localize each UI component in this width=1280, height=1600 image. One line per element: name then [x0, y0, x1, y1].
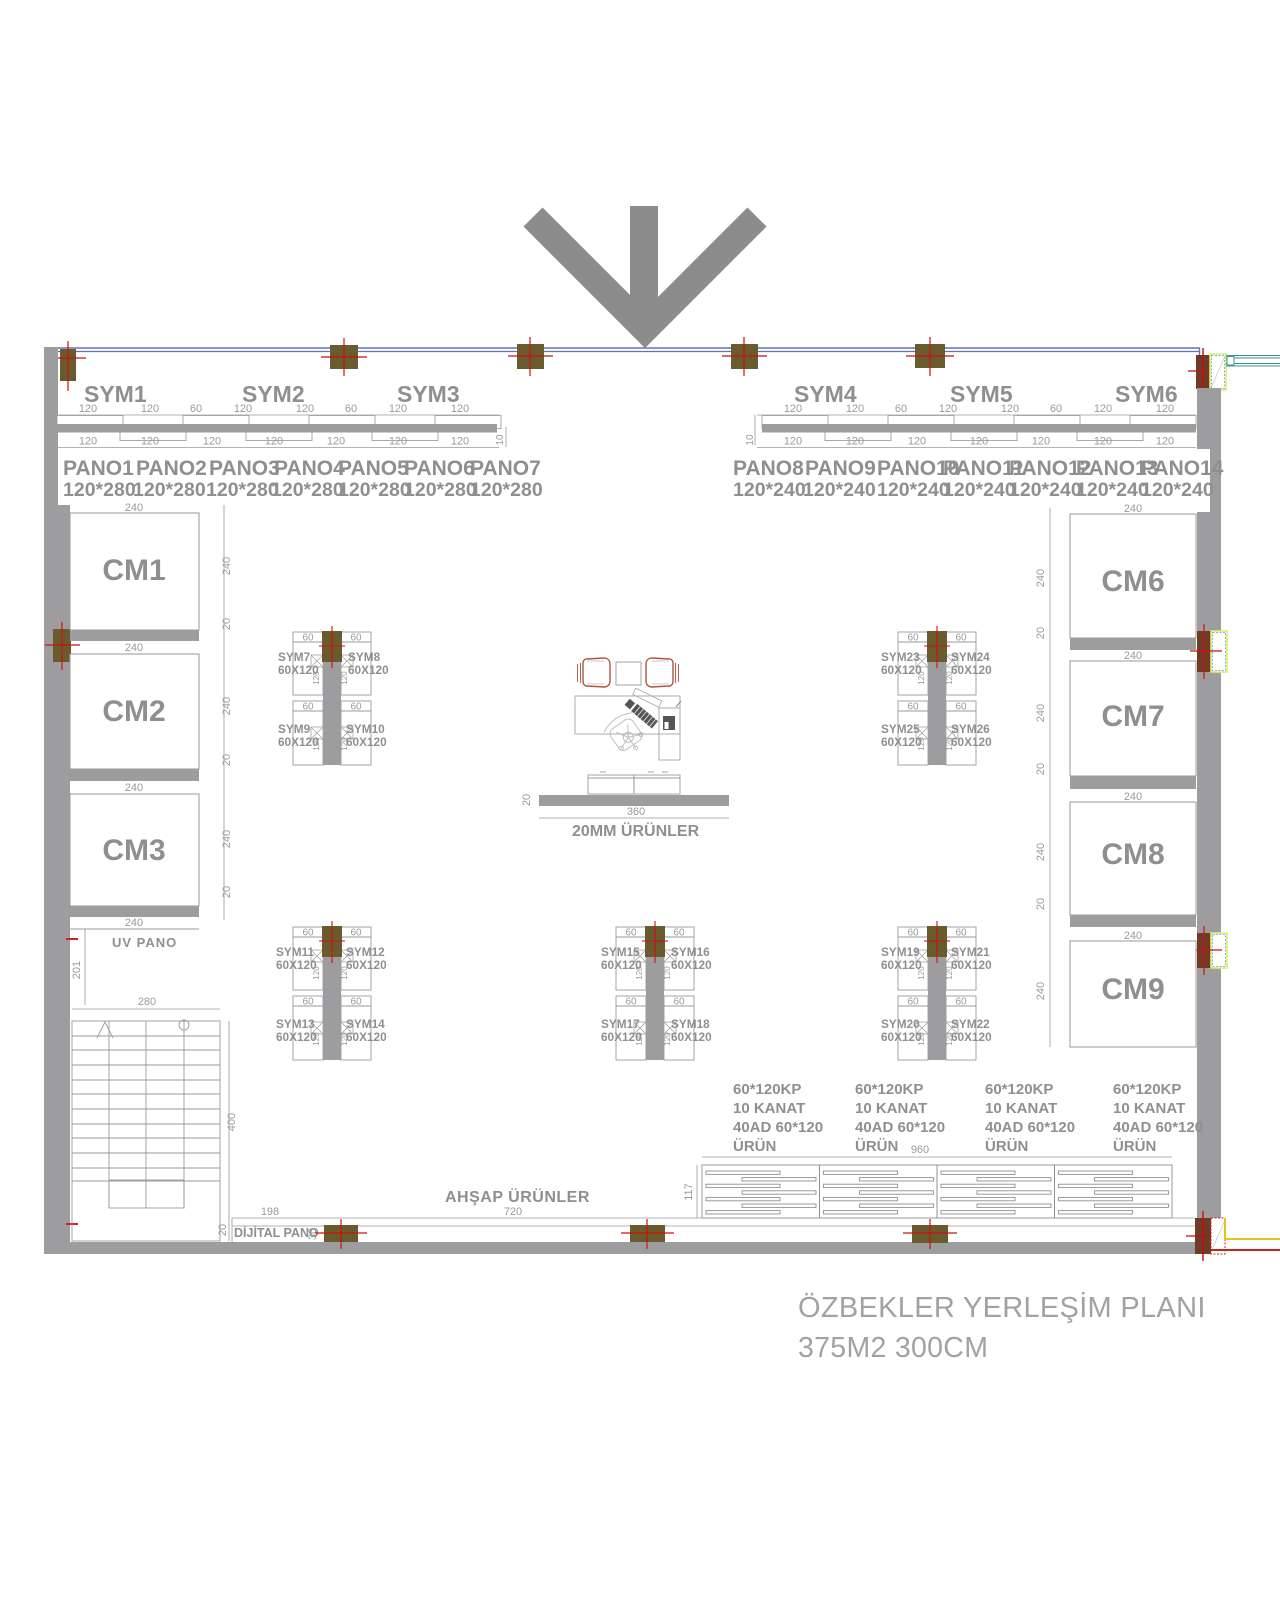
- svg-text:120: 120: [1156, 403, 1174, 415]
- svg-text:60X120: 60X120: [276, 958, 317, 972]
- svg-text:10 KANAT: 10 KANAT: [985, 1100, 1057, 1117]
- svg-text:240: 240: [125, 917, 143, 929]
- svg-text:280: 280: [138, 996, 156, 1008]
- svg-text:120*280: 120*280: [271, 479, 344, 501]
- svg-text:120*240: 120*240: [1009, 479, 1082, 501]
- svg-text:120: 120: [1156, 436, 1174, 448]
- svg-text:120: 120: [141, 403, 159, 415]
- svg-text:120: 120: [451, 403, 469, 415]
- svg-text:120*240: 120*240: [943, 479, 1016, 501]
- svg-text:20MM ÜRÜNLER: 20MM ÜRÜNLER: [572, 821, 700, 840]
- svg-text:CM9: CM9: [1101, 973, 1164, 1006]
- svg-text:240: 240: [1035, 569, 1047, 587]
- svg-text:SYM15: SYM15: [601, 945, 640, 959]
- svg-text:CM8: CM8: [1101, 838, 1164, 871]
- svg-text:ÜRÜN: ÜRÜN: [855, 1138, 898, 1155]
- svg-text:240: 240: [125, 642, 143, 654]
- svg-text:60*120KP: 60*120KP: [855, 1081, 923, 1098]
- svg-text:40AD 60*120: 40AD 60*120: [985, 1119, 1075, 1136]
- svg-text:240: 240: [1124, 930, 1142, 942]
- svg-text:120: 120: [451, 436, 469, 448]
- svg-text:120*240: 120*240: [1141, 479, 1214, 501]
- svg-text:PANO4: PANO4: [274, 457, 345, 480]
- svg-text:40AD 60*120: 40AD 60*120: [733, 1119, 823, 1136]
- svg-text:PANO14: PANO14: [1141, 457, 1224, 480]
- svg-text:120: 120: [265, 436, 283, 448]
- svg-text:120: 120: [784, 403, 802, 415]
- svg-text:120: 120: [1032, 436, 1050, 448]
- svg-text:120*280: 120*280: [338, 479, 411, 501]
- svg-text:120: 120: [203, 436, 221, 448]
- svg-text:120: 120: [939, 403, 957, 415]
- svg-text:120: 120: [846, 436, 864, 448]
- svg-text:ÜRÜN: ÜRÜN: [733, 1138, 776, 1155]
- svg-text:CM3: CM3: [102, 834, 165, 867]
- svg-text:120*280: 120*280: [404, 479, 477, 501]
- svg-text:PANO9: PANO9: [805, 457, 876, 480]
- svg-text:20: 20: [1035, 627, 1047, 639]
- svg-text:60X120: 60X120: [951, 663, 992, 677]
- svg-text:120: 120: [784, 436, 802, 448]
- svg-text:60X120: 60X120: [601, 1030, 642, 1044]
- svg-text:240: 240: [1124, 650, 1142, 662]
- svg-text:60: 60: [895, 403, 907, 415]
- svg-text:240: 240: [1035, 982, 1047, 1000]
- svg-text:60: 60: [1050, 403, 1062, 415]
- svg-text:60X120: 60X120: [671, 1030, 712, 1044]
- svg-text:SYM20: SYM20: [881, 1017, 920, 1031]
- svg-text:PANO5: PANO5: [338, 457, 409, 480]
- svg-text:40AD 60*120: 40AD 60*120: [1113, 1119, 1203, 1136]
- svg-text:375M2 300CM: 375M2 300CM: [798, 1332, 988, 1364]
- svg-text:10 KANAT: 10 KANAT: [1113, 1100, 1185, 1117]
- svg-text:10 KANAT: 10 KANAT: [733, 1100, 805, 1117]
- svg-text:SYM14: SYM14: [346, 1017, 385, 1031]
- svg-text:60X120: 60X120: [346, 1030, 387, 1044]
- svg-text:PANO7: PANO7: [470, 457, 541, 480]
- svg-text:SYM23: SYM23: [881, 650, 920, 664]
- svg-text:PANO8: PANO8: [733, 457, 804, 480]
- svg-text:120*240: 120*240: [803, 479, 876, 501]
- svg-text:20: 20: [521, 794, 533, 806]
- svg-text:60: 60: [345, 403, 357, 415]
- svg-text:60X120: 60X120: [278, 663, 319, 677]
- svg-text:PANO3: PANO3: [209, 457, 280, 480]
- svg-text:UV PANO: UV PANO: [112, 935, 177, 950]
- svg-text:SYM7: SYM7: [278, 650, 311, 664]
- svg-text:120: 120: [79, 403, 97, 415]
- svg-text:120: 120: [970, 436, 988, 448]
- svg-text:120*240: 120*240: [1076, 479, 1149, 501]
- svg-text:60X120: 60X120: [346, 735, 387, 749]
- svg-text:198: 198: [261, 1206, 279, 1218]
- svg-text:SYM17: SYM17: [601, 1017, 640, 1031]
- svg-text:40AD 60*120: 40AD 60*120: [855, 1119, 945, 1136]
- svg-text:240: 240: [221, 697, 233, 715]
- svg-text:60X120: 60X120: [881, 663, 922, 677]
- svg-text:10: 10: [495, 434, 506, 446]
- svg-text:PANO6: PANO6: [404, 457, 475, 480]
- svg-text:400: 400: [226, 1113, 238, 1131]
- svg-text:60X120: 60X120: [346, 958, 387, 972]
- svg-text:CM1: CM1: [102, 554, 165, 587]
- svg-text:ÖZBEKLER YERLEŞİM PLANI: ÖZBEKLER YERLEŞİM PLANI: [798, 1291, 1206, 1324]
- svg-text:20: 20: [1035, 763, 1047, 775]
- svg-text:120: 120: [1094, 403, 1112, 415]
- svg-text:720: 720: [504, 1206, 522, 1218]
- svg-text:SYM24: SYM24: [951, 650, 990, 664]
- svg-text:60X120: 60X120: [601, 958, 642, 972]
- svg-text:ÜRÜN: ÜRÜN: [1113, 1138, 1156, 1155]
- svg-text:20: 20: [1035, 898, 1047, 910]
- svg-text:120*280: 120*280: [63, 479, 136, 501]
- svg-text:60X120: 60X120: [951, 735, 992, 749]
- svg-text:120: 120: [234, 403, 252, 415]
- svg-text:120*280: 120*280: [470, 479, 543, 501]
- svg-text:SYM22: SYM22: [951, 1017, 990, 1031]
- svg-text:60X120: 60X120: [276, 1030, 317, 1044]
- svg-text:201: 201: [71, 961, 83, 979]
- svg-text:240: 240: [1035, 704, 1047, 722]
- svg-text:60X120: 60X120: [278, 735, 319, 749]
- svg-text:20: 20: [221, 886, 233, 898]
- svg-text:SYM21: SYM21: [951, 945, 990, 959]
- svg-text:120: 120: [1001, 403, 1019, 415]
- svg-text:60X120: 60X120: [881, 1030, 922, 1044]
- svg-text:60*120KP: 60*120KP: [985, 1081, 1053, 1098]
- svg-text:CM7: CM7: [1101, 700, 1164, 733]
- svg-text:ÜRÜN: ÜRÜN: [985, 1138, 1028, 1155]
- svg-text:60: 60: [190, 403, 202, 415]
- svg-text:60X120: 60X120: [881, 958, 922, 972]
- svg-text:SYM13: SYM13: [276, 1017, 315, 1031]
- svg-text:120*280: 120*280: [133, 479, 206, 501]
- svg-text:10 KANAT: 10 KANAT: [855, 1100, 927, 1117]
- svg-text:PANO1: PANO1: [63, 457, 134, 480]
- svg-text:20: 20: [221, 618, 233, 630]
- svg-text:960: 960: [911, 1144, 929, 1156]
- svg-text:60X120: 60X120: [671, 958, 712, 972]
- svg-text:20: 20: [217, 1224, 229, 1236]
- svg-text:CM2: CM2: [102, 695, 165, 728]
- svg-text:120: 120: [296, 403, 314, 415]
- svg-text:SYM16: SYM16: [671, 945, 710, 959]
- svg-text:120: 120: [389, 436, 407, 448]
- svg-text:120: 120: [141, 436, 159, 448]
- svg-text:60*120KP: 60*120KP: [1113, 1081, 1181, 1098]
- svg-text:120: 120: [1094, 436, 1112, 448]
- svg-text:CM6: CM6: [1101, 565, 1164, 598]
- svg-text:240: 240: [221, 557, 233, 575]
- svg-text:60X120: 60X120: [881, 735, 922, 749]
- svg-text:20: 20: [221, 754, 233, 766]
- svg-text:120: 120: [389, 403, 407, 415]
- svg-text:360: 360: [627, 806, 645, 818]
- svg-text:SYM10: SYM10: [346, 722, 385, 736]
- svg-text:60X120: 60X120: [951, 958, 992, 972]
- svg-text:PANO2: PANO2: [136, 457, 207, 480]
- svg-text:SYM12: SYM12: [346, 945, 385, 959]
- svg-text:120: 120: [79, 436, 97, 448]
- svg-text:SYM8: SYM8: [348, 650, 381, 664]
- svg-text:120*240: 120*240: [877, 479, 950, 501]
- svg-text:240: 240: [1124, 503, 1142, 515]
- svg-text:AHŞAP ÜRÜNLER: AHŞAP ÜRÜNLER: [445, 1187, 590, 1206]
- svg-text:120*280: 120*280: [206, 479, 279, 501]
- svg-text:SYM26: SYM26: [951, 722, 990, 736]
- svg-text:SYM9: SYM9: [278, 722, 311, 736]
- svg-text:60X120: 60X120: [348, 663, 389, 677]
- svg-text:240: 240: [1035, 843, 1047, 861]
- svg-text:SYM25: SYM25: [881, 722, 920, 736]
- svg-text:120: 120: [327, 436, 345, 448]
- svg-text:240: 240: [1124, 791, 1142, 803]
- svg-text:SYM18: SYM18: [671, 1017, 710, 1031]
- svg-text:120: 120: [846, 403, 864, 415]
- svg-text:120: 120: [908, 436, 926, 448]
- svg-text:10: 10: [745, 434, 756, 446]
- svg-text:120*240: 120*240: [733, 479, 806, 501]
- svg-text:SYM11: SYM11: [276, 945, 314, 959]
- svg-text:240: 240: [221, 830, 233, 848]
- svg-text:SYM19: SYM19: [881, 945, 920, 959]
- svg-text:240: 240: [125, 502, 143, 514]
- svg-text:240: 240: [125, 782, 143, 794]
- svg-text:60X120: 60X120: [951, 1030, 992, 1044]
- svg-text:DİJİTAL PANO: DİJİTAL PANO: [234, 1225, 319, 1240]
- svg-text:60*120KP: 60*120KP: [733, 1081, 801, 1098]
- svg-text:117: 117: [683, 1183, 695, 1201]
